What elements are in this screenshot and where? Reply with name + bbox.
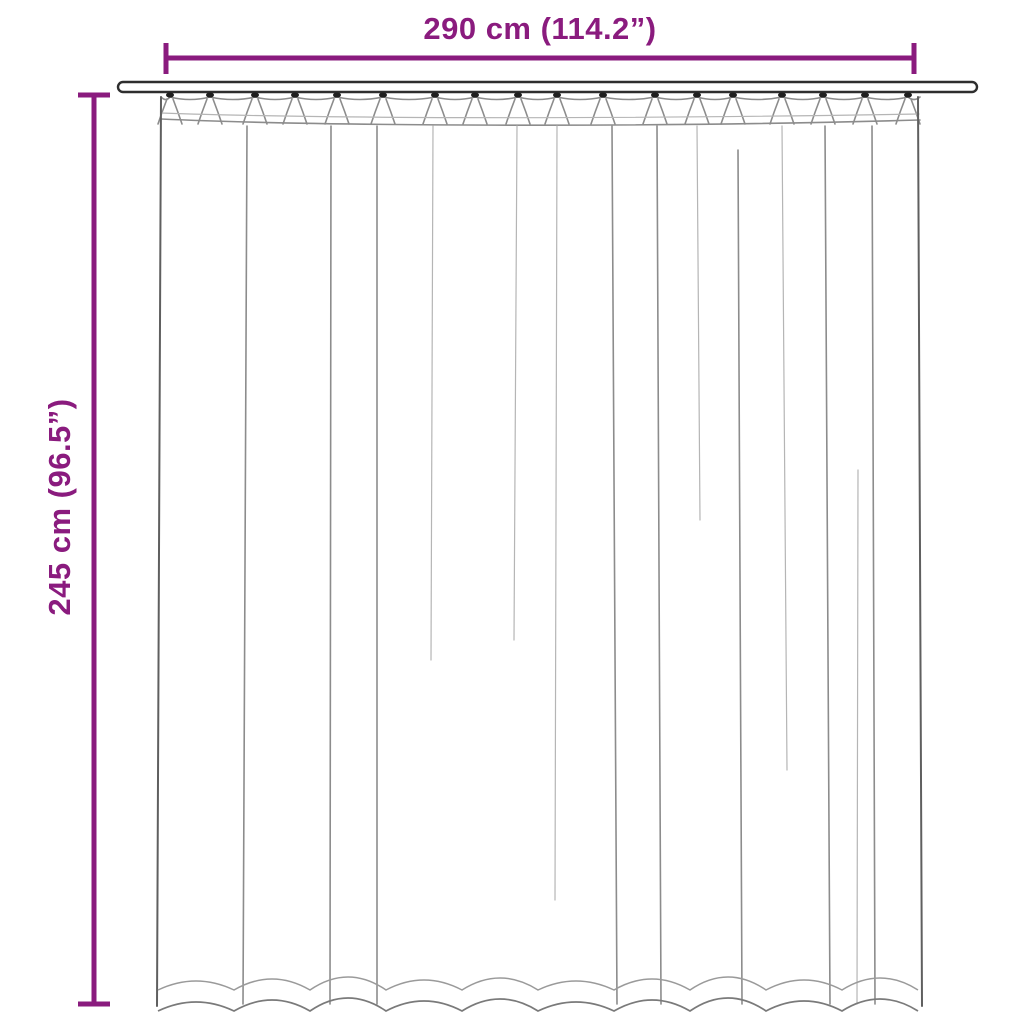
curtain-hook-icon [651, 92, 659, 97]
curtain-hook-icon [333, 92, 341, 97]
pleat-gather-line [506, 99, 515, 124]
pleat-gather-line [158, 99, 167, 124]
pleat-gather-line [868, 99, 877, 124]
curtain-illustration [157, 92, 922, 1011]
curtain-fold-line [857, 470, 858, 1004]
curtain-hook-icon [904, 92, 912, 97]
pleat-gather-line [770, 99, 779, 124]
curtain-hook-icon [166, 92, 174, 97]
pleat-gather-line [736, 99, 745, 124]
pleat-gather-line [371, 99, 380, 124]
pleat-gather-line [853, 99, 862, 124]
curtain-fold-line [243, 126, 247, 1004]
curtain-fold-line [555, 126, 557, 900]
pleat-gather-line [721, 99, 730, 124]
curtain-fold-line [697, 126, 700, 520]
pleat-gather-line [560, 99, 569, 124]
curtain-fold-line [514, 126, 517, 640]
pleat-gather-line [606, 99, 615, 124]
curtain-hook-icon [861, 92, 869, 97]
curtain-header-seam [161, 113, 919, 118]
width-label: 290 cm (114.2”) [423, 11, 656, 46]
pleat-gather-line [325, 99, 334, 124]
curtain-hook-icon [291, 92, 299, 97]
pleat-gather-line [423, 99, 432, 124]
curtain-hook-icon [251, 92, 259, 97]
curtain-fold-line [918, 97, 922, 1006]
pleat-gather-line [591, 99, 600, 124]
pleat-gather-line [438, 99, 447, 124]
pleat-gather-line [340, 99, 349, 124]
pleat-gather-line [643, 99, 652, 124]
diagram-svg: 290 cm (114.2”) 245 cm (96.5”) [0, 0, 1024, 1024]
pleat-gather-line [243, 99, 252, 124]
curtain-fold-line [782, 126, 787, 770]
pleat-gather-line [826, 99, 835, 124]
curtain-hook-icon [693, 92, 701, 97]
pleat-gather-line [700, 99, 709, 124]
curtain-hook-icon [206, 92, 214, 97]
curtain-fold-line [431, 126, 433, 660]
pleat-gather-line [298, 99, 307, 124]
curtain-hook-icon [379, 92, 387, 97]
pleat-gather-line [463, 99, 472, 124]
pleat-gather-line [521, 99, 530, 124]
pleat-gather-line [283, 99, 292, 124]
pleat-gather-line [658, 99, 667, 124]
height-label: 245 cm (96.5”) [42, 398, 77, 615]
curtain-hook-icon [599, 92, 607, 97]
curtain-hem-seam [158, 977, 918, 990]
height-measure: 245 cm (96.5”) [42, 95, 110, 1004]
pleat-gather-line [478, 99, 487, 124]
curtain-header-seam [161, 119, 920, 125]
curtain-bottom-edge [158, 998, 918, 1011]
curtain-fold-line [330, 126, 331, 1004]
curtain-rod [118, 82, 977, 92]
curtain-fold-line [738, 150, 742, 1004]
curtain-hook-icon [778, 92, 786, 97]
curtain-fold-line [872, 126, 875, 1004]
curtain-hook-icon [431, 92, 439, 97]
pleat-gather-line [811, 99, 820, 124]
curtain-hook-icon [514, 92, 522, 97]
curtain-hook-icon [553, 92, 561, 97]
pleat-gather-line [785, 99, 794, 124]
curtain-hook-icon [819, 92, 827, 97]
curtain-hook-icon [729, 92, 737, 97]
curtain-hook-icon [471, 92, 479, 97]
curtain-top-edge [161, 97, 920, 100]
curtain-fold-line [657, 126, 661, 1004]
pleat-gather-line [258, 99, 267, 124]
width-measure: 290 cm (114.2”) [166, 11, 914, 74]
product-dimension-diagram: 290 cm (114.2”) 245 cm (96.5”) [0, 0, 1024, 1024]
curtain-fold-line [825, 126, 830, 1004]
pleat-gather-line [685, 99, 694, 124]
pleat-gather-line [386, 99, 395, 124]
curtain-fold-line [157, 97, 161, 1006]
curtain-fold-line [612, 126, 617, 1004]
pleat-gather-line [545, 99, 554, 124]
